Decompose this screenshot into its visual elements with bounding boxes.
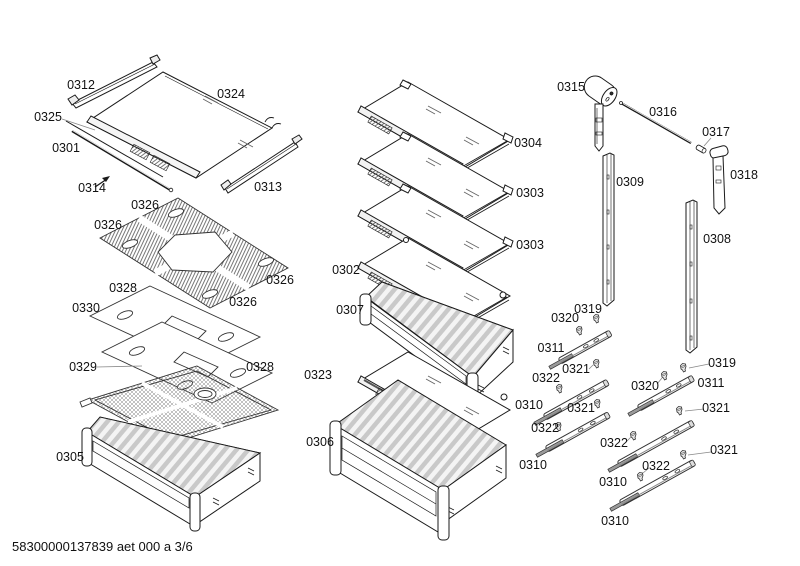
part-label-0326-d: 0326 [229, 295, 257, 309]
clip-0321-left-b [595, 400, 601, 409]
clip-0319-right [681, 364, 687, 373]
part-label-0310-rb: 0310 [601, 514, 629, 528]
part-label-0307: 0307 [336, 303, 364, 317]
part-label-0319-r: 0319 [708, 356, 736, 370]
part-label-0330: 0330 [72, 301, 100, 315]
clip-0320-left [577, 327, 583, 336]
part-label-0326-b: 0326 [94, 218, 122, 232]
part-label-0320-l: 0320 [551, 311, 579, 325]
document-code: 58300000137839 aet 000 a 3/6 [12, 539, 193, 554]
part-label-0326-a: 0326 [131, 198, 159, 212]
bracket-0318 [709, 145, 729, 214]
damper-0315 [580, 72, 620, 151]
part-label-0325: 0325 [34, 110, 62, 124]
clip-0321-left-a [594, 360, 600, 369]
part-label-0322-la: 0322 [532, 371, 560, 385]
part-label-0310-ra: 0310 [599, 475, 627, 489]
part-label-0328-a: 0328 [109, 281, 137, 295]
part-label-0321-ra: 0321 [702, 401, 730, 415]
part-label-0311-r: 0311 [698, 376, 725, 390]
part-label-0310-la: 0310 [515, 398, 543, 412]
part-label-0320-r: 0320 [631, 379, 659, 393]
part-label-0304: 0304 [514, 136, 542, 150]
part-label-0303-b: 0303 [516, 238, 544, 252]
part-label-0323: 0323 [304, 368, 332, 382]
sleeve-0317 [695, 144, 706, 153]
part-label-0329: 0329 [69, 360, 97, 374]
part-label-0315: 0315 [557, 80, 585, 94]
exploded-parts-diagram: 0312 0324 0325 0301 0314 0313 0326 0326 … [0, 0, 800, 566]
part-label-0303-a: 0303 [516, 186, 544, 200]
clip-0322-right-a [631, 432, 637, 441]
part-label-0305: 0305 [56, 450, 84, 464]
part-label-0321-la: 0321 [562, 362, 590, 376]
part-label-0321-rb: 0321 [710, 443, 738, 457]
part-label-0309: 0309 [616, 175, 644, 189]
part-label-0313: 0313 [254, 180, 282, 194]
parts-diagram-page: 0312 0324 0325 0301 0314 0313 0326 0326 … [0, 0, 800, 566]
part-label-0312: 0312 [67, 78, 95, 92]
part-label-0308: 0308 [703, 232, 731, 246]
clip-0320-right [662, 372, 668, 381]
clip-0321-right-a [677, 407, 683, 416]
part-label-0317: 0317 [702, 125, 730, 139]
part-label-0301: 0301 [52, 141, 80, 155]
mounting-rail-0308 [686, 200, 697, 353]
part-label-0328-b: 0328 [246, 360, 274, 374]
clip-0322-right-b [638, 473, 644, 482]
part-label-0314: 0314 [78, 181, 106, 195]
part-label-0306: 0306 [306, 435, 334, 449]
part-label-0322-ra: 0322 [600, 436, 628, 450]
mounting-rail-0309 [603, 153, 614, 306]
part-label-0324: 0324 [217, 87, 245, 101]
part-label-0311-l: 0311 [538, 341, 565, 355]
part-label-0322-rb: 0322 [642, 459, 670, 473]
part-label-0321-lb: 0321 [567, 401, 595, 415]
clip-0321-right-b [681, 451, 687, 460]
part-label-0302: 0302 [332, 263, 360, 277]
drawer-0305 [82, 417, 260, 531]
clip-0322-left-a [557, 385, 563, 394]
part-label-0326-c: 0326 [266, 273, 294, 287]
part-label-0318: 0318 [730, 168, 758, 182]
part-label-0316: 0316 [649, 105, 677, 119]
part-label-0322-lb: 0322 [531, 421, 559, 435]
part-label-0310-lb: 0310 [519, 458, 547, 472]
